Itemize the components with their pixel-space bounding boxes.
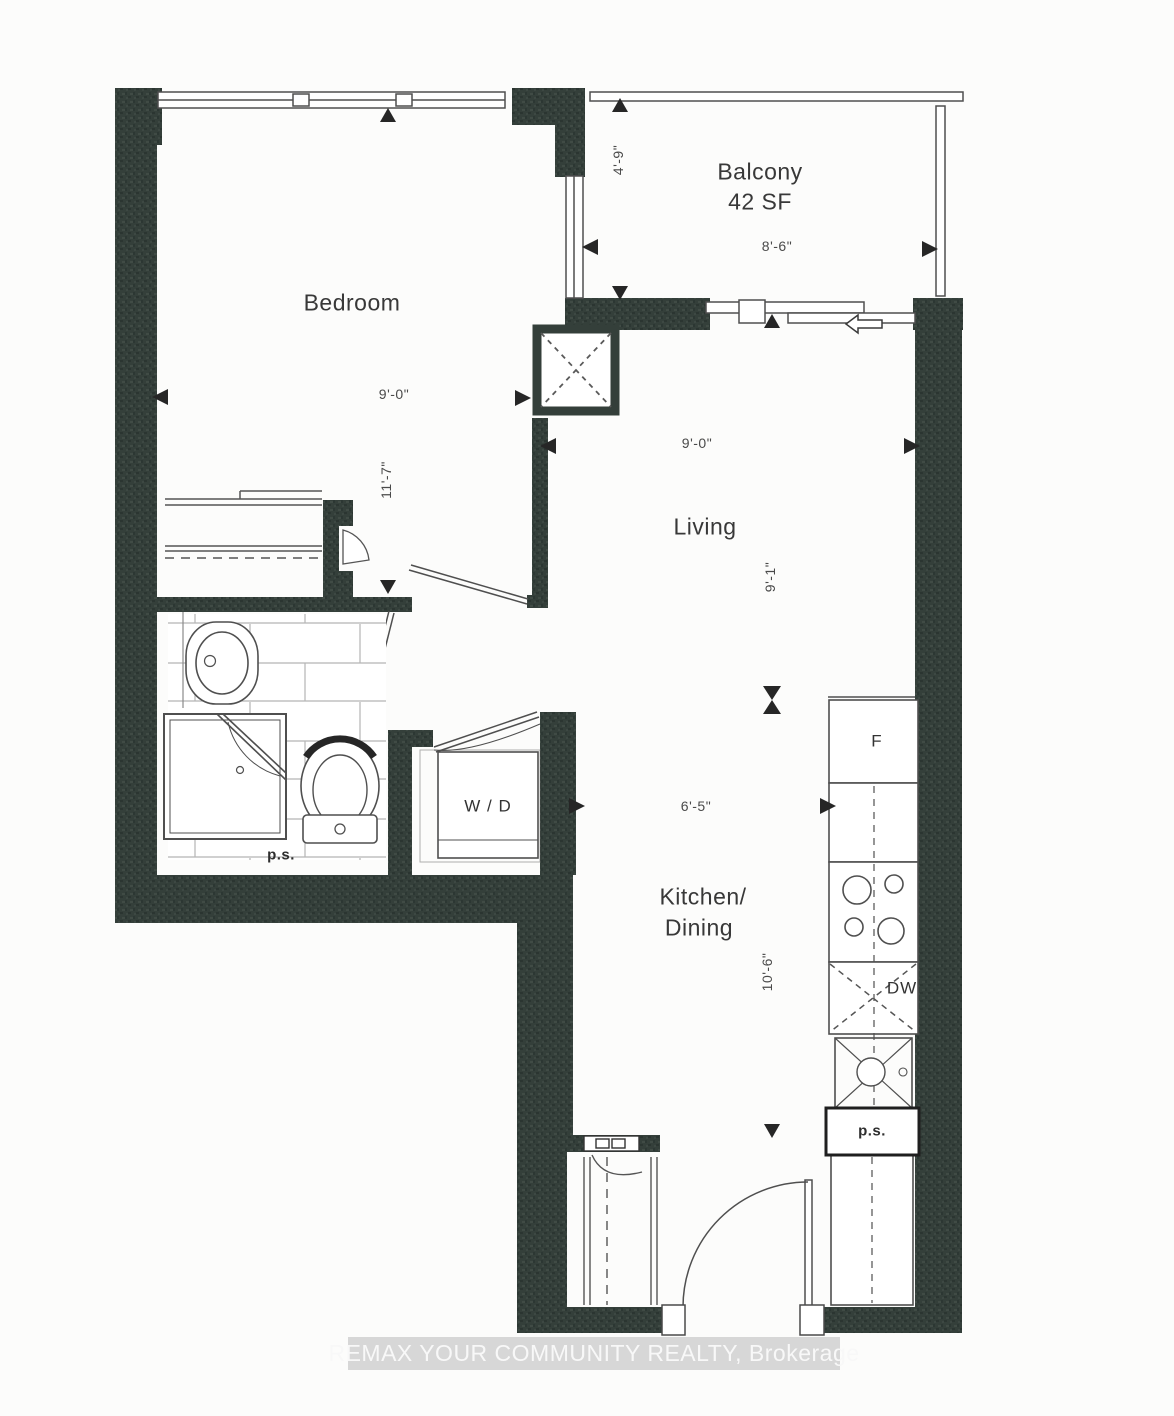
toilet — [301, 739, 379, 843]
watermark-text: REMAX YOUR COMMUNITY REALTY, Brokerage — [328, 1340, 859, 1367]
bedroom-label: Bedroom — [304, 292, 401, 315]
bedroom-closet — [165, 491, 322, 558]
bedroom-width-dim: 9'-0" — [379, 387, 409, 401]
balcony-sliding-door — [706, 300, 915, 323]
washer-closet-door — [434, 712, 540, 752]
closet-niche-door — [343, 530, 369, 564]
fridge-label: F — [871, 733, 882, 750]
living-width-dim: 9'-0" — [682, 436, 712, 450]
balcony-label: Balcony — [717, 161, 802, 184]
dishwasher-label: DW — [887, 980, 917, 997]
living-label: Living — [673, 516, 736, 539]
watermark-band: REMAX YOUR COMMUNITY REALTY, Brokerage — [348, 1337, 840, 1370]
kitchen-label-line2: Dining — [665, 917, 733, 940]
balcony-width-dim: 8'-6" — [762, 239, 792, 253]
bathroom-sink — [186, 622, 258, 704]
living-depth-dim: 9'-1" — [763, 562, 777, 592]
kitchen-depth-dim: 10'-6" — [760, 953, 774, 992]
bath-pipe-shaft-label: p.s. — [267, 848, 295, 863]
bedroom-depth-dim: 11'-7" — [379, 461, 393, 499]
balcony-depth-dim: 4'-9" — [611, 145, 625, 175]
kitchen-width-dim: 6'-5" — [681, 799, 711, 813]
entry-door-jamb-caps — [662, 1305, 824, 1335]
kitchen-pipe-shaft-label: p.s. — [858, 1124, 886, 1139]
entry-closet — [584, 1155, 657, 1305]
kitchen-label-line1: Kitchen/ — [659, 886, 746, 909]
washer-dryer-label: W / D — [464, 798, 512, 815]
entry-closet-door-icon — [584, 1136, 639, 1151]
floor-plan-drawing — [0, 0, 1174, 1416]
bedroom-window — [158, 92, 505, 108]
shaft-x-box — [537, 329, 615, 411]
entry-door — [683, 1180, 812, 1307]
floor-plan: Bedroom Balcony 42 SF Living Kitchen/ Di… — [0, 0, 1174, 1416]
kitchen-counter — [828, 697, 918, 1305]
balcony-area-label: 42 SF — [728, 191, 792, 214]
bedroom-balcony-window — [566, 176, 583, 298]
shower — [164, 714, 286, 839]
bedroom-door — [409, 565, 528, 604]
